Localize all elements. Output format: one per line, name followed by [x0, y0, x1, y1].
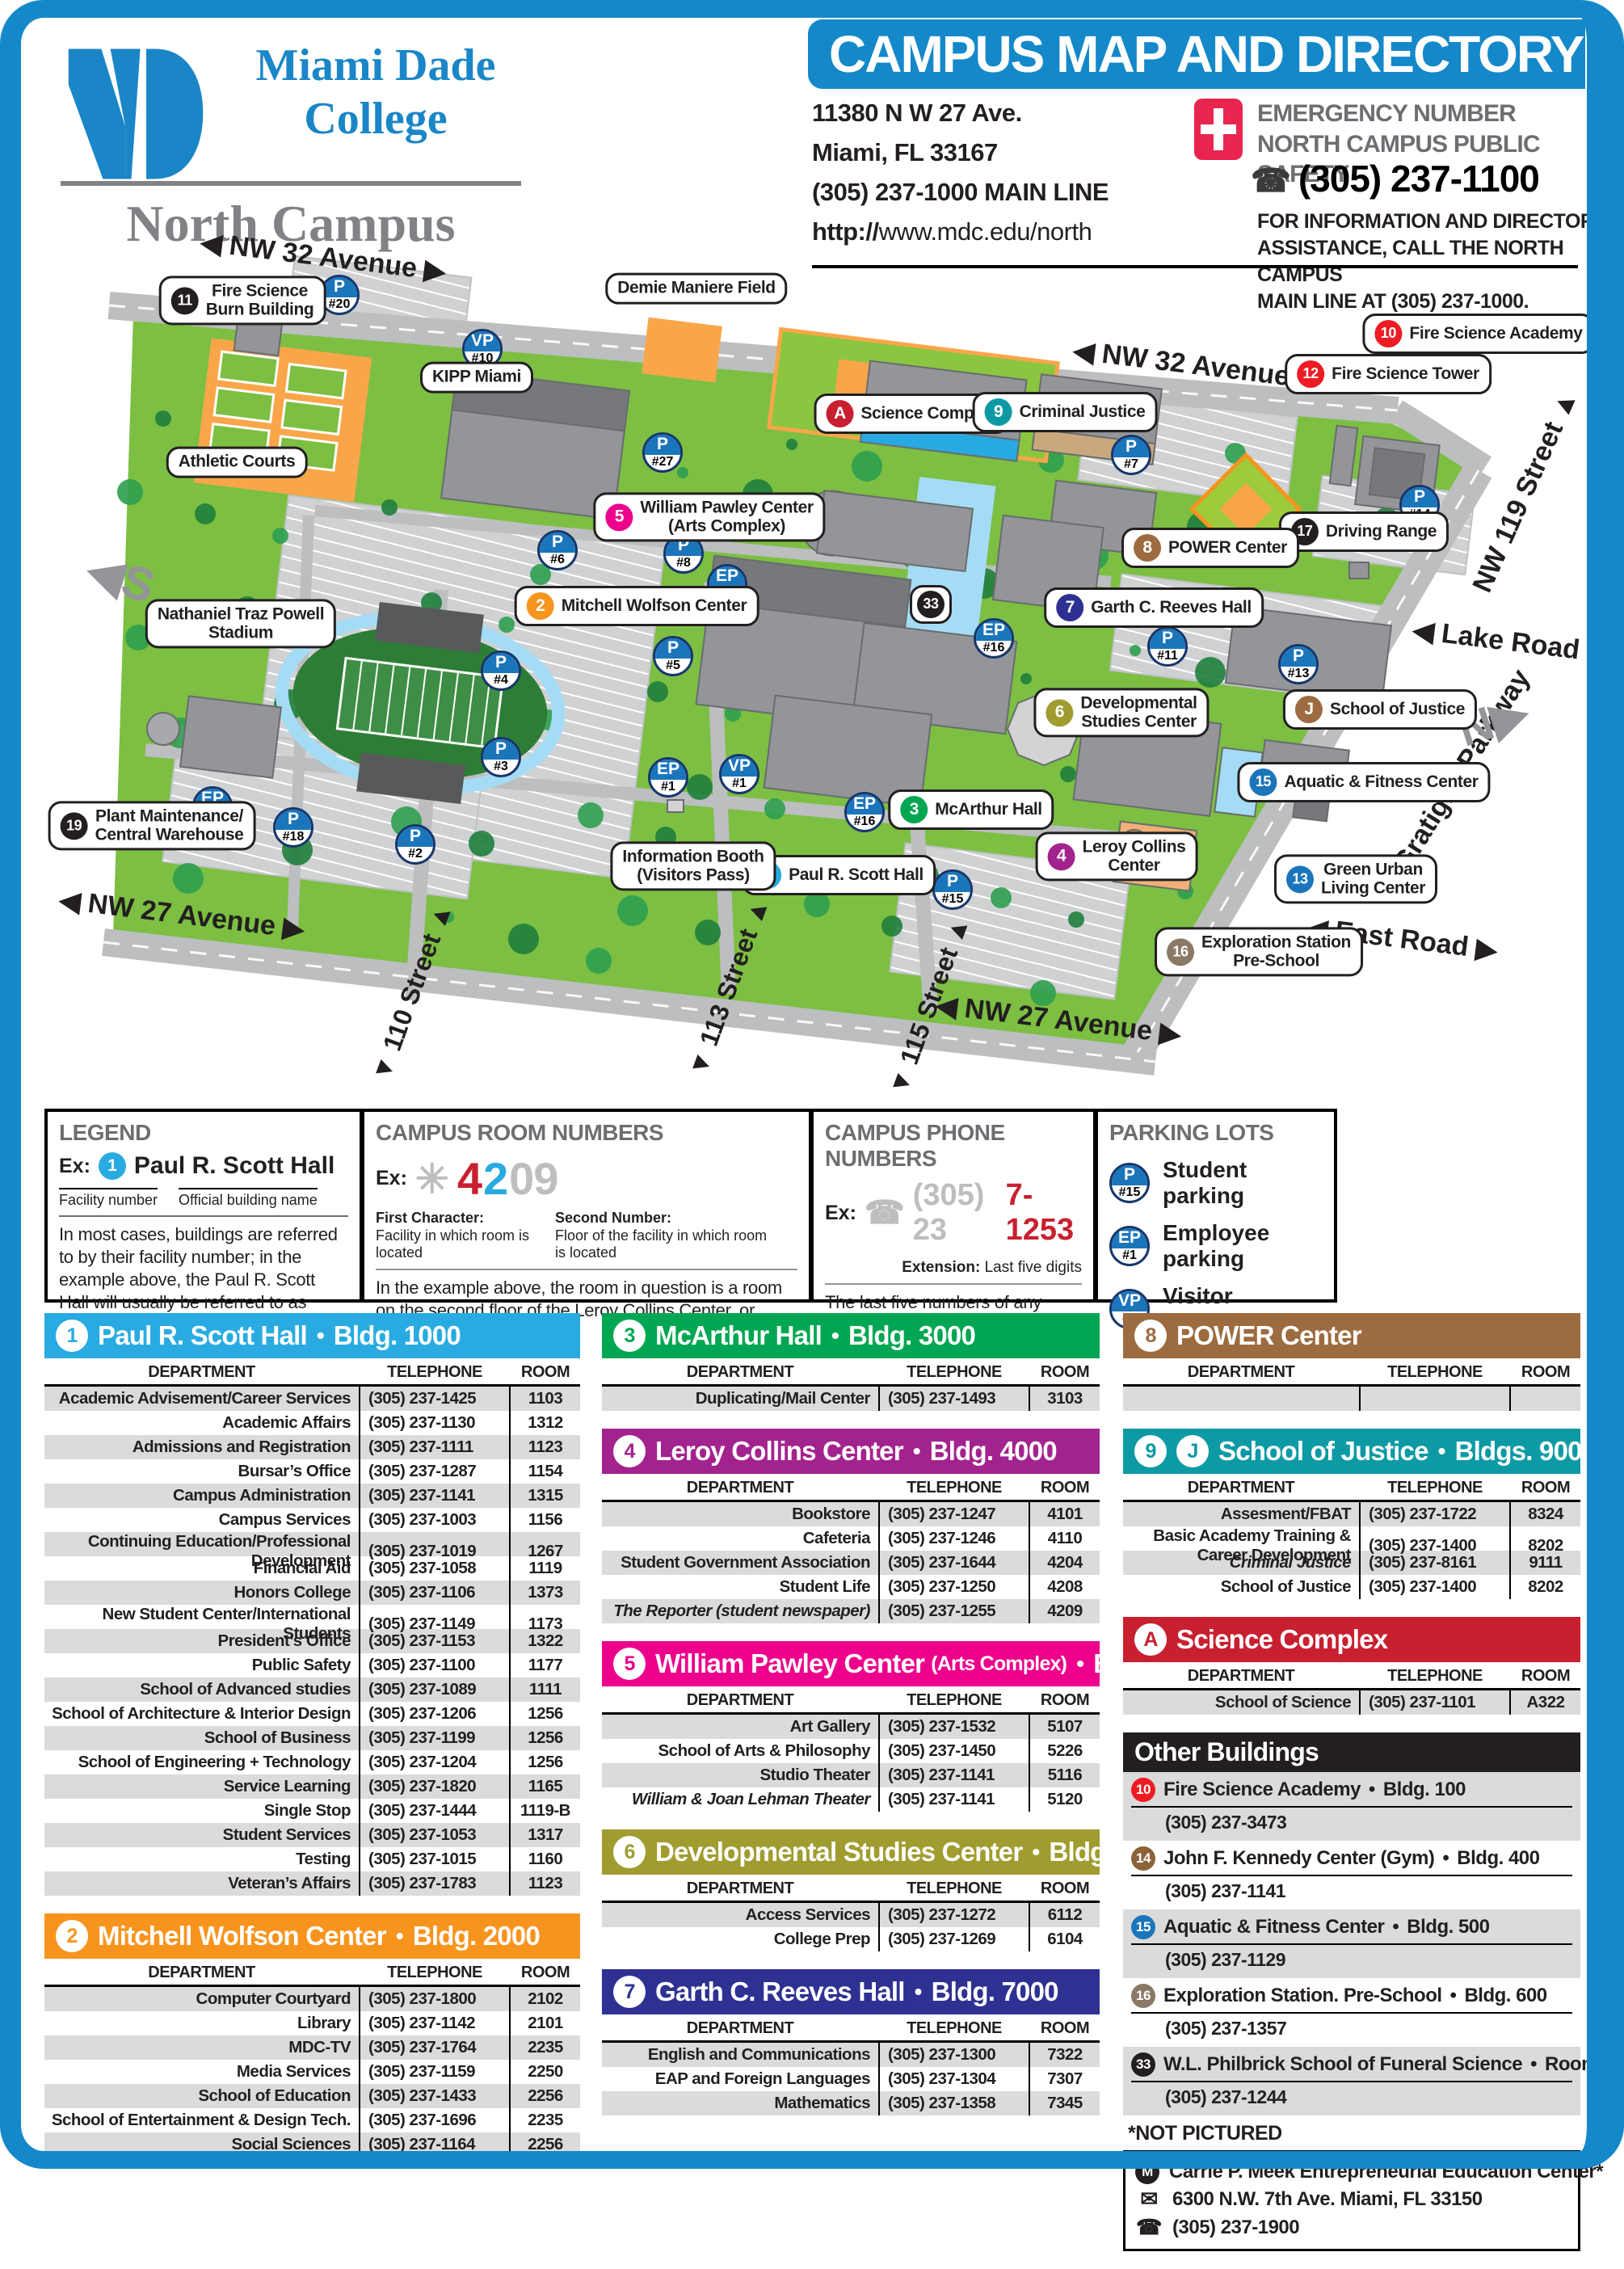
parking-type: P — [645, 435, 680, 455]
dept-cell: Studio Theater — [602, 1763, 878, 1787]
other-buildings-section: Other Buildings10Fire Science Academy•Bl… — [1123, 1732, 1580, 2251]
second-number-note: Second Number:Floor of the facility in w… — [555, 1210, 781, 1262]
telephone-cell: (305) 237-1450 — [878, 1739, 1030, 1763]
room-column-header: ROOM — [1511, 1363, 1580, 1384]
bullet-separator: • — [915, 1979, 922, 2005]
map-callout-label: Green UrbanLiving Center — [1321, 861, 1425, 897]
table-row: Duplicating/Mail Center(305) 237-1493310… — [602, 1387, 1100, 1411]
parking-type: P — [1402, 487, 1437, 507]
map-overlay: ◀ NW 32 Avenue ▶◀ NW 32 Avenue ▶NW 119 S… — [24, 242, 1592, 1099]
map-callout-label: Mitchell Wolfson Center — [562, 597, 747, 616]
map-callout: 33 — [910, 585, 952, 624]
map-callout-line: (Arts Complex) — [640, 517, 813, 536]
bullet-separator: • — [1450, 1985, 1457, 2007]
dept-cell: School of Business — [44, 1726, 359, 1750]
other-building-name-row: 33W.L. Philbrick School of Funeral Scien… — [1131, 2052, 1572, 2082]
column-headers: DEPARTMENTTELEPHONEROOM — [602, 1875, 1100, 1903]
url-rest: www.mdc.edu/north — [879, 217, 1092, 246]
building-number-badge: 6 — [613, 1836, 646, 1868]
table-row: Media Services(305) 237-11592250 — [44, 2060, 580, 2084]
map-callout-label: Leroy CollinsCenter — [1083, 838, 1186, 874]
building-title: Mitchell Wolfson Center — [98, 1921, 386, 1951]
parking-legend-label: Student parking — [1163, 1157, 1315, 1209]
room-cell: 1119-B — [511, 1799, 580, 1823]
department-column-header: DEPARTMENT — [1123, 1667, 1359, 1688]
other-building-bldg: Room 3142 — [1545, 2053, 1624, 2076]
column-headers: DEPARTMENTTELEPHONEROOM — [44, 1959, 580, 1987]
building-number-badge: 7 — [1056, 594, 1083, 621]
room-cell: 9111 — [1511, 1551, 1580, 1575]
dept-cell: Academic Affairs — [44, 1411, 359, 1435]
building-number-badge: 5 — [613, 1648, 646, 1680]
parking-lot-number: #7 — [1113, 457, 1149, 473]
url-prefix: http:// — [812, 217, 879, 246]
dept-cell: Public Safety — [44, 1653, 359, 1678]
room-cell: 8324 — [1511, 1502, 1580, 1526]
building-title: McArthur Hall — [655, 1320, 822, 1351]
map-callout-label: Demie Maniere Field — [617, 280, 775, 298]
room-cell: 7322 — [1030, 2043, 1100, 2067]
table-row: The Reporter (student newspaper)(305) 23… — [602, 1599, 1100, 1623]
building-number-badge: J — [1176, 1435, 1209, 1467]
building-number-badge: 16 — [1131, 1984, 1155, 2008]
telephone-cell: (305) 237-1199 — [359, 1726, 511, 1750]
parking-lot-number: #2 — [398, 847, 433, 862]
room-cell: 1165 — [511, 1774, 580, 1799]
building-number-badge: 15 — [1131, 1915, 1155, 1939]
other-building-phone: (305) 237-1244 — [1131, 2082, 1572, 2108]
telephone-cell: (305) 237-1300 — [878, 2043, 1030, 2067]
table-row: Campus Administration(305) 237-11411315 — [44, 1484, 580, 1508]
department-column-header: DEPARTMENT — [602, 1880, 878, 1901]
building-number-badge: 3 — [613, 1320, 646, 1352]
dept-cell: School of Arts & Philosophy — [602, 1739, 878, 1763]
parking-type: P — [655, 638, 691, 659]
building-number-badge: 4 — [1048, 843, 1075, 870]
table-row: School of Architecture & Interior Design… — [44, 1702, 580, 1726]
dept-cell: Bookstore — [602, 1502, 878, 1526]
building-number-label: Bldg. 7000 — [932, 1976, 1058, 2007]
building-header: 5William Pawley Center(Arts Complex)•Bld… — [602, 1641, 1100, 1686]
telephone-column-header: TELEPHONE — [1359, 1667, 1511, 1688]
parking-lot-number: #1 — [1112, 1248, 1147, 1264]
dept-cell: School of Architecture & Interior Design — [44, 1702, 359, 1726]
dept-cell: School of Justice — [1123, 1575, 1359, 1599]
example-label: Ex: — [59, 1155, 90, 1178]
telephone-cell: (305) 237-1130 — [359, 1411, 511, 1435]
parking-lot-number: #13 — [1281, 667, 1316, 682]
room-cell: 1111 — [511, 1678, 580, 1702]
telephone-cell: (305) 237-1159 — [359, 2060, 511, 2084]
parking-badge: P#7 — [1111, 435, 1151, 475]
telephone-cell: (305) 237-1255 — [878, 1599, 1030, 1623]
other-building-name-row: 14John F. Kennedy Center (Gym)•Bldg. 400 — [1131, 1846, 1572, 1876]
telephone-cell: (305) 237-1053 — [359, 1823, 511, 1847]
table-row: School of Advanced studies(305) 237-1089… — [44, 1678, 580, 1702]
parking-badge: P#27 — [642, 432, 683, 473]
room-cell: 4204 — [1030, 1551, 1100, 1575]
department-column-header: DEPARTMENT — [1123, 1363, 1359, 1384]
map-callout-line: McArthur Hall — [935, 801, 1041, 819]
table-row: College Prep(305) 237-12696104 — [602, 1927, 1100, 1951]
map-callout-line: School of Justice — [1330, 701, 1465, 719]
telephone-cell: (305) 237-1164 — [359, 2132, 511, 2157]
telephone-cell: (305) 237-1820 — [359, 1774, 511, 1799]
telephone-cell: (305) 237-1003 — [359, 1508, 511, 1532]
parking-lot-number: #1 — [722, 777, 757, 792]
parking-type: P — [935, 872, 970, 892]
parking-lot-number: #27 — [645, 455, 680, 470]
room-cell: 1156 — [511, 1508, 580, 1532]
parking-type: P — [322, 277, 357, 297]
meek-address-row: ✉6300 N.W. 7th Ave. Miami, FL 33150 — [1135, 2185, 1568, 2213]
parking-lot-number: #11 — [1150, 649, 1185, 664]
dept-cell: Media Services — [44, 2060, 359, 2084]
table-row: School of Justice(305) 237-14008202 — [1123, 1575, 1580, 1599]
dept-cell: Mathematics — [602, 2091, 878, 2115]
building-number-badge: 14 — [1131, 1846, 1155, 1871]
table-row: Social Sciences(305) 237-11642256 — [44, 2132, 580, 2157]
room-cell: 1256 — [511, 1750, 580, 1774]
school-name-line1: Miami Dade — [206, 39, 545, 92]
dept-cell: Cafeteria — [602, 1526, 878, 1551]
address-block: 11380 N W 27 Ave. Miami, FL 33167 (305) … — [812, 94, 1109, 252]
map-callout-label: Paul R. Scott Hall — [789, 866, 923, 885]
telephone-cell: (305) 237-1783 — [359, 1871, 511, 1896]
school-name: Miami Dade College — [206, 39, 545, 145]
room-column-header: ROOM — [1030, 1363, 1100, 1384]
room-cell: 4209 — [1030, 1599, 1100, 1623]
dept-cell: Honors College — [44, 1581, 359, 1605]
building-number-badge: 10 — [1374, 320, 1402, 347]
table-row: Library(305) 237-11422101 — [44, 2011, 580, 2035]
dept-cell: Computer Courtyard — [44, 1987, 359, 2011]
table-row: School of Entertainment & Design Tech.(3… — [44, 2108, 580, 2132]
telephone-cell: (305) 237-1400 — [1359, 1575, 1511, 1599]
legend-section: LEGEND Ex: 1 Paul R. Scott Hall Facility… — [48, 1112, 364, 1299]
parking-badge: EP#1 — [1109, 1226, 1150, 1266]
telephone-cell: (305) 237-1250 — [878, 1575, 1030, 1599]
building-number-badge: 6 — [1046, 699, 1073, 726]
extension-note: Extension: Last five digits — [825, 1259, 1082, 1277]
room-column-header: ROOM — [1030, 2019, 1100, 2040]
telephone-cell: (305) 237-1153 — [359, 1629, 511, 1653]
building-number-badge: 10 — [1131, 1778, 1155, 1802]
building-number-badge: 15 — [1249, 768, 1277, 796]
building-title: Leroy Collins Center — [655, 1436, 903, 1467]
compass-star-icon: ✳ — [415, 1156, 449, 1202]
building-number-badge: 12 — [1297, 360, 1324, 388]
map-callout-label: School of Justice — [1330, 701, 1465, 719]
map-callout-line: KIPP Miami — [432, 368, 521, 387]
building-number-badge: 33 — [1131, 2052, 1155, 2077]
other-building-name: John F. Kennedy Center (Gym) — [1163, 1847, 1434, 1870]
room-cell: 5116 — [1030, 1763, 1100, 1787]
table-row: Criminal Justice(305) 237-81619111 — [1123, 1551, 1580, 1575]
column-headers: DEPARTMENTTELEPHONEROOM — [1123, 1358, 1580, 1387]
address-line: 11380 N W 27 Ave. — [812, 94, 1109, 133]
room-cell: 2235 — [511, 2108, 580, 2132]
room-column-header: ROOM — [1030, 1880, 1100, 1901]
street-label: ▼ 113 Street ▲ — [683, 895, 775, 1081]
table-row: School of Engineering + Technology(305) … — [44, 1750, 580, 1774]
map-callout-label: Fire ScienceBurn Building — [206, 282, 314, 318]
dept-cell: Academic Advisement/Career Services — [44, 1387, 359, 1411]
parking-lot-number: #6 — [540, 553, 575, 568]
dept-cell: Campus Services — [44, 1508, 359, 1532]
building-header: 8POWER Center — [1123, 1313, 1580, 1358]
table-row: Assesment/FBAT(305) 237-17228324 — [1123, 1502, 1580, 1526]
street-label: ◀ NW 27 Avenue ▶ — [934, 989, 1182, 1051]
telephone-cell: (305) 237-1425 — [359, 1387, 511, 1411]
table-row: President’s Office(305) 237-11531322 — [44, 1629, 580, 1653]
other-building-name-row: 10Fire Science Academy•Bldg. 100 — [1131, 1778, 1572, 1808]
map-callout-label: William Pawley Center(Arts Complex) — [640, 499, 813, 535]
room-cell: 1256 — [511, 1726, 580, 1750]
map-callout-line: Living Center — [1321, 879, 1425, 898]
other-building-phone: (305) 237-1141 — [1131, 1876, 1572, 1902]
sample-building-name: Paul R. Scott Hall — [134, 1152, 334, 1180]
building-number-label: Bldg. 1000 — [334, 1320, 461, 1351]
telephone-cell: (305) 237-1247 — [878, 1502, 1030, 1526]
meek-phone-row: ☎(305) 237-1900 — [1135, 2213, 1568, 2242]
telephone-column-header: TELEPHONE — [359, 1363, 511, 1384]
parking-badge: P#18 — [273, 807, 313, 848]
building-title: POWER Center — [1176, 1320, 1361, 1351]
table-row: Student Services(305) 237-10531317 — [44, 1823, 580, 1847]
dept-cell: College Prep — [602, 1927, 878, 1951]
column-headers: DEPARTMENTTELEPHONEROOM — [602, 2014, 1100, 2043]
building-header: 7Garth C. Reeves Hall•Bldg. 7000 — [602, 1969, 1100, 2014]
room-column-header: ROOM — [1511, 1667, 1580, 1688]
phone-icon: ☎ — [1135, 2213, 1163, 2242]
dept-cell: Financial Aid — [44, 1556, 359, 1581]
parking-badge: VP#1 — [719, 754, 759, 794]
address-line: (305) 237-1000 MAIN LINE — [812, 173, 1109, 213]
department-column-header: DEPARTMENT — [602, 2019, 878, 2040]
map-callout-label: Fire Science Tower — [1332, 365, 1479, 384]
building-number-badge: 9 — [985, 398, 1012, 426]
table-row: Access Services(305) 237-12726112 — [602, 1903, 1100, 1927]
school-name-line2: College — [206, 92, 545, 145]
parking-type: P — [540, 533, 575, 553]
parking-badge: P#3 — [481, 737, 521, 777]
bullet-separator: • — [913, 1438, 920, 1464]
dept-cell: English and Communications — [602, 2043, 878, 2067]
parking-badge: P#6 — [537, 530, 578, 570]
map-callout: 3McArthur Hall — [888, 789, 1054, 830]
building-title: Developmental Studies Center — [655, 1837, 1022, 1867]
dept-cell: The Reporter (student newspaper) — [602, 1599, 878, 1623]
other-building-bldg: Bldg. 600 — [1464, 1985, 1546, 2007]
parking-badge: EP#1 — [648, 757, 688, 798]
room-column-header: ROOM — [1511, 1479, 1580, 1500]
map-callout-label: Plant Maintenance/Central Warehouse — [95, 807, 244, 844]
map-callout: 2Mitchell Wolfson Center — [515, 586, 759, 626]
other-building-phone: (305) 237-3473 — [1131, 1808, 1572, 1833]
building-number-label: Bldg. 3000 — [848, 1320, 975, 1351]
legend-title: LEGEND — [59, 1120, 348, 1146]
room-cell: 4101 — [1030, 1502, 1100, 1526]
telephone-column-header: TELEPHONE — [878, 1363, 1030, 1384]
room-cell: 2256 — [511, 2132, 580, 2157]
parking-badge: P#4 — [481, 650, 521, 691]
room-cell: 1322 — [511, 1629, 580, 1653]
map-callout-label: Aquatic & Fitness Center — [1284, 773, 1478, 792]
telephone-column-header: TELEPHONE — [878, 1479, 1030, 1500]
map-callout-line: William Pawley Center — [640, 499, 813, 517]
map-callout-line: Information Booth — [622, 848, 764, 866]
department-column-header: DEPARTMENT — [602, 1363, 878, 1384]
room-cell: 8202 — [1511, 1575, 1580, 1599]
room-cell: 1315 — [511, 1484, 580, 1508]
map-callout-line: Plant Maintenance/ — [95, 807, 244, 826]
parking-type: P — [483, 653, 519, 673]
building-section: 8POWER CenterDEPARTMENTTELEPHONEROOM — [1123, 1313, 1580, 1411]
bullet-separator: • — [1369, 1779, 1375, 1801]
dept-cell: Veteran’s Affairs — [44, 1871, 359, 1896]
room-cell: 7345 — [1030, 2091, 1100, 2115]
map-callout: 9Criminal Justice — [973, 392, 1158, 432]
table-row: William & Joan Lehman Theater(305) 237-1… — [602, 1787, 1100, 1812]
room-cell: 1256 — [511, 1702, 580, 1726]
other-building-name: Exploration Station. Pre-School — [1163, 1985, 1442, 2007]
building-title: Garth C. Reeves Hall — [655, 1976, 905, 2007]
dept-cell: Access Services — [602, 1903, 878, 1927]
building-number-badge: 3 — [900, 796, 928, 823]
department-column-header: DEPARTMENT — [1123, 1479, 1359, 1500]
room-cell: 1177 — [511, 1653, 580, 1678]
dept-cell: Student Government Association — [602, 1551, 878, 1575]
directory-column-1: 1Paul R. Scott Hall•Bldg. 1000DEPARTMENT… — [44, 1313, 580, 2174]
building-title: School of Justice — [1218, 1436, 1428, 1467]
map-callout: 15Aquatic & Fitness Center — [1237, 762, 1490, 802]
telephone-cell: (305) 237-1106 — [359, 1581, 511, 1605]
emergency-label-1: EMERGENCY NUMBER — [1257, 99, 1624, 129]
building-header: 3McArthur Hall•Bldg. 3000 — [602, 1313, 1100, 1358]
parking-badge: EP#16 — [844, 792, 885, 832]
telephone-cell: (305) 237-1141 — [878, 1763, 1030, 1787]
parking-lot-number: #16 — [847, 815, 882, 830]
map-callout: KIPP Miami — [420, 362, 533, 394]
parking-type: P — [483, 739, 519, 760]
building-number-badge: 7 — [613, 1976, 646, 2008]
telephone-cell: (305) 237-1433 — [359, 2084, 511, 2108]
bullet-separator: • — [1530, 2053, 1537, 2076]
room-cell: 5120 — [1030, 1787, 1100, 1812]
meek-center-name: Carrie P. Meek Entrepreneurial Education… — [1169, 2159, 1603, 2185]
building-section: 6Developmental Studies Center•Bldg. 6000… — [602, 1829, 1100, 1951]
legend: LEGEND Ex: 1 Paul R. Scott Hall Facility… — [44, 1109, 1337, 1303]
parking-legend-item: P#15Student parking — [1109, 1157, 1315, 1209]
facility-number-label: Facility number — [59, 1188, 158, 1209]
map-callout-line: Green Urban — [1321, 861, 1425, 879]
department-column-header: DEPARTMENT — [44, 1964, 359, 1985]
map-callout-label: DevelopmentalStudies Center — [1080, 694, 1197, 730]
department-column-header: DEPARTMENT — [602, 1691, 878, 1712]
room-cell: 1373 — [511, 1581, 580, 1605]
table-row: School of Science(305) 237-1101A322 — [1123, 1690, 1580, 1715]
other-building-phone: (305) 237-1129 — [1131, 1945, 1572, 1971]
room-cell: 1160 — [511, 1847, 580, 1871]
telephone-cell: (305) 237-1696 — [359, 2108, 511, 2132]
room-column-header: ROOM — [1030, 1691, 1100, 1712]
map-callout-label: Athletic Courts — [179, 453, 296, 472]
map-callout-label: Exploration StationPre-School — [1201, 933, 1351, 970]
map-callout: 12Fire Science Tower — [1285, 354, 1491, 394]
parking-badge: P#15 — [1109, 1163, 1150, 1203]
dept-cell: Library — [44, 2011, 359, 2035]
table-row — [1123, 1387, 1580, 1411]
map-callout: 8POWER Center — [1121, 528, 1299, 568]
other-building-entry: 16Exploration Station. Pre-School•Bldg. … — [1123, 1978, 1580, 2047]
building-number-badge: 11 — [171, 287, 199, 314]
map-callout-line: Garth C. Reeves Hall — [1091, 599, 1252, 617]
table-row: Academic Advisement/Career Services(305)… — [44, 1387, 580, 1411]
building-section: AScience ComplexDEPARTMENTTELEPHONEROOMS… — [1123, 1617, 1580, 1715]
parking-badge: P#15 — [932, 869, 973, 910]
table-row: Financial Aid(305) 237-10581119 — [44, 1556, 580, 1581]
map-callout-line: Central Warehouse — [95, 826, 244, 844]
map-callout: Demie Maniere Field — [605, 273, 787, 305]
envelope-icon: ✉ — [1135, 2185, 1163, 2213]
parking-lot-number: #16 — [976, 641, 1012, 656]
room-cell: 5226 — [1030, 1739, 1100, 1763]
telephone-cell: (305) 237-1089 — [359, 1678, 511, 1702]
dept-cell: Bursar’s Office — [44, 1459, 359, 1484]
telephone-cell: (305) 237-1204 — [359, 1750, 511, 1774]
street-label: NW 119 Street ▲ — [1466, 385, 1584, 597]
room-cell: 5107 — [1030, 1715, 1100, 1739]
table-row: Honors College(305) 237-11061373 — [44, 1581, 580, 1605]
telephone-cell: (305) 237-1287 — [359, 1459, 511, 1484]
building-number-label: Bldgs. 9000 & J — [1455, 1436, 1624, 1467]
room-cell: 4208 — [1030, 1575, 1100, 1599]
department-column-header: DEPARTMENT — [44, 1363, 359, 1384]
telephone-cell: (305) 237-1015 — [359, 1847, 511, 1871]
dept-cell: William & Joan Lehman Theater — [602, 1787, 878, 1812]
room-numbers-section: CAMPUS ROOM NUMBERS Ex: ✳ 4 2 09 First C… — [364, 1112, 814, 1299]
other-building-name: W.L. Philbrick School of Funeral Science — [1163, 2053, 1522, 2076]
telephone-cell: (305) 237-1058 — [359, 1556, 511, 1581]
dept-cell: Admissions and Registration — [44, 1435, 359, 1459]
parking-lot-number: #15 — [1112, 1185, 1147, 1201]
other-building-phone: (305) 237-1357 — [1131, 2014, 1572, 2040]
building-section: 7Garth C. Reeves Hall•Bldg. 7000DEPARTME… — [602, 1969, 1100, 2115]
room-cell: 1317 — [511, 1823, 580, 1847]
building-section: 9JSchool of Justice•Bldgs. 9000 & JDEPAR… — [1123, 1429, 1580, 1599]
map-callout-line: Demie Maniere Field — [617, 280, 775, 298]
building-number-badge: 5 — [605, 503, 633, 531]
table-row: Academic Affairs(305) 237-11301312 — [44, 1411, 580, 1435]
map-callout-line: Stadium — [158, 624, 324, 642]
map-callout-line: Mitchell Wolfson Center — [562, 597, 747, 616]
table-row: School of Education(305) 237-14332256 — [44, 2084, 580, 2108]
map-callout: 5William Pawley Center(Arts Complex) — [593, 492, 825, 541]
page-title-banner: CAMPUS MAP AND DIRECTORY — [808, 19, 1585, 89]
map-callout: 17Driving Range — [1279, 511, 1449, 552]
map-callout-line: POWER Center — [1168, 539, 1287, 558]
map-callout-line: Developmental — [1080, 694, 1197, 713]
telephone-column-header: TELEPHONE — [1359, 1479, 1511, 1500]
parking-type: EP — [847, 794, 882, 815]
dept-cell: Service Learning — [44, 1774, 359, 1799]
room-cell: 6112 — [1030, 1903, 1100, 1927]
room-digit-2: 2 — [483, 1152, 507, 1205]
parking-type: VP — [465, 331, 500, 352]
bullet-separator: • — [831, 1323, 839, 1349]
table-row: Studio Theater(305) 237-11415116 — [602, 1763, 1100, 1787]
